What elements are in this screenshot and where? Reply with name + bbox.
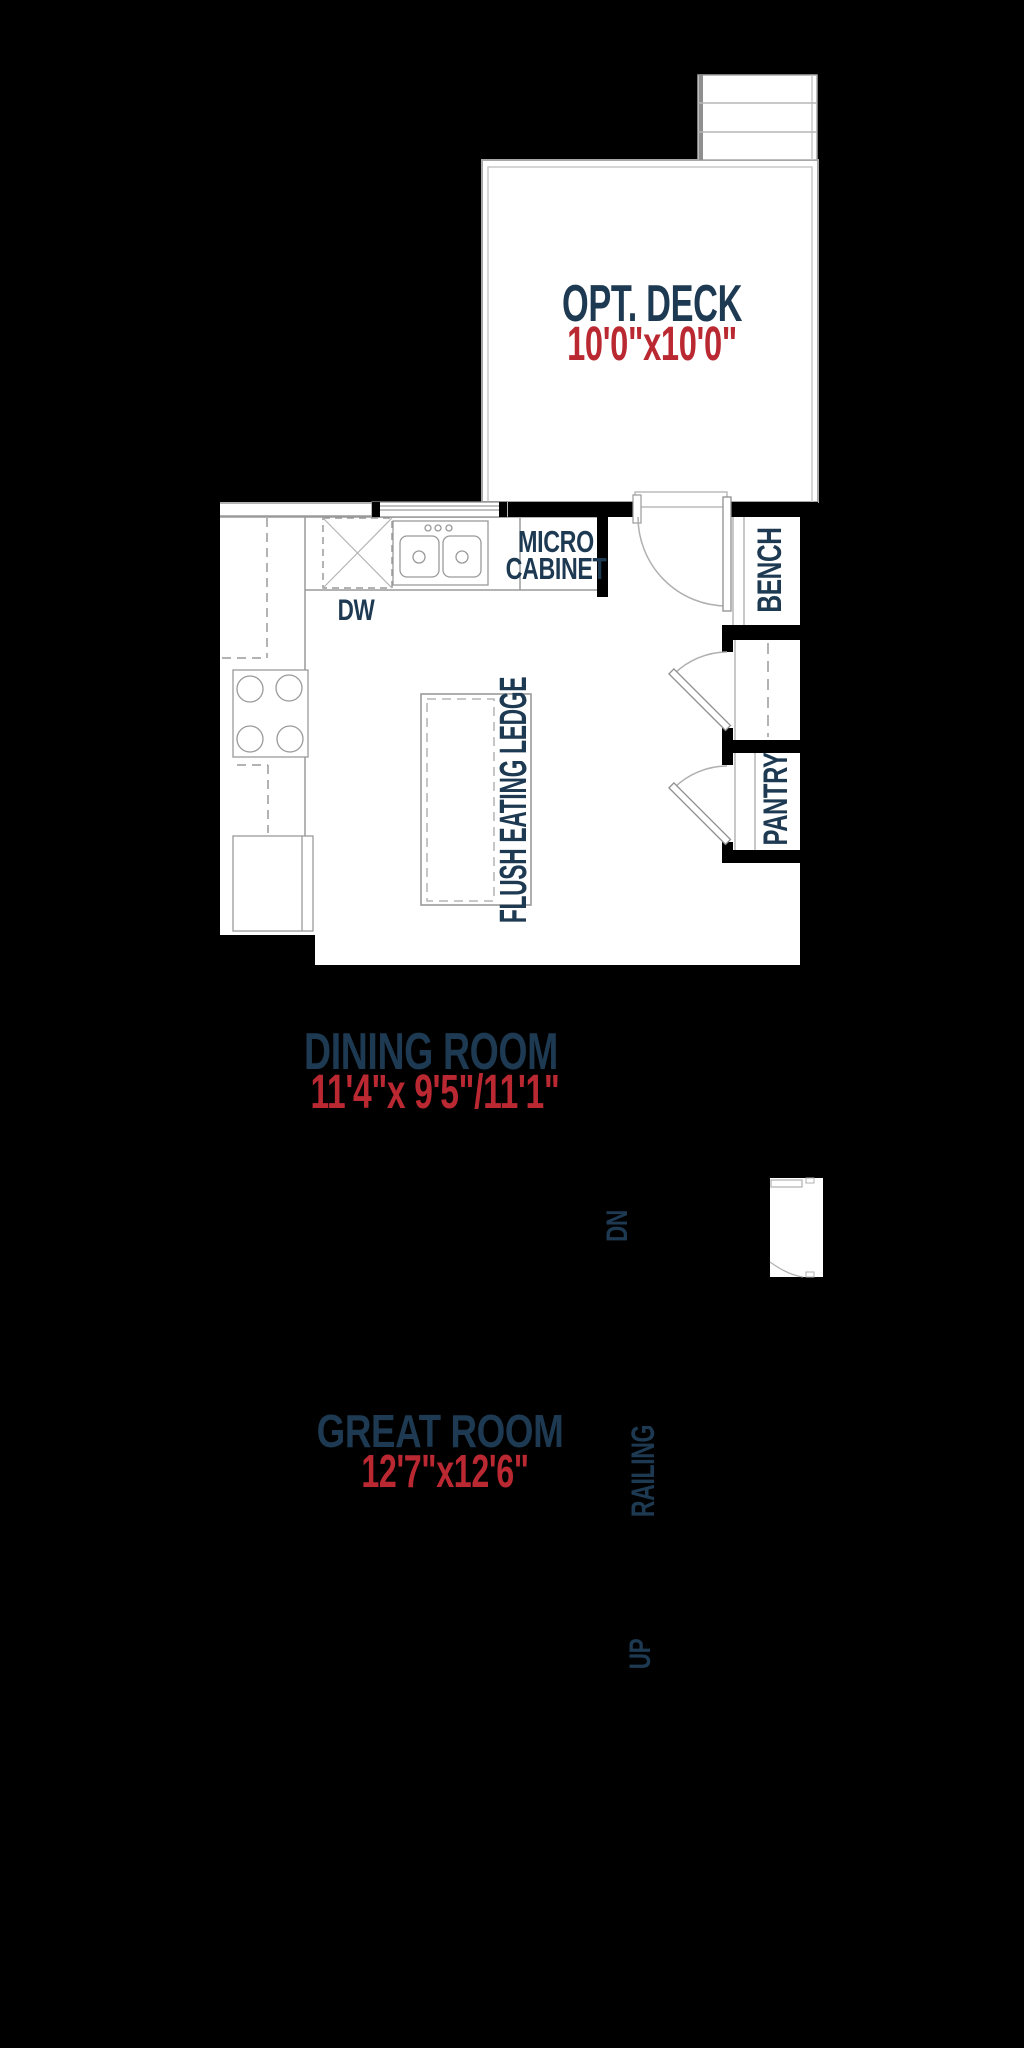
stairs-dn-label: DN xyxy=(603,1210,633,1242)
great-room-dimensions: 12'7"x12'6" xyxy=(361,1448,528,1494)
dishwasher-label: DW xyxy=(338,596,375,626)
kitchen-sink xyxy=(393,521,488,585)
bench-label: BENCH xyxy=(753,527,787,612)
dining-room-dimensions: 11'4"x 9'5"/11'1" xyxy=(311,1069,560,1117)
stairs-up-label: UP xyxy=(626,1639,656,1670)
kitchen-window xyxy=(372,502,507,517)
dishwasher xyxy=(323,518,392,588)
stove xyxy=(233,670,308,757)
micro-cabinet-label: MICRO CABINET xyxy=(506,528,607,582)
deck-dimensions: 10'0"x10'0" xyxy=(567,321,737,369)
stairwell-door xyxy=(770,1178,823,1277)
micro-cabinet-line2: CABINET xyxy=(506,555,607,582)
pantry-label: PANTRY xyxy=(759,752,793,845)
island-label: FLUSH EATING LEDGE xyxy=(495,677,533,923)
refrigerator xyxy=(233,836,313,931)
railing-label: RAILING xyxy=(627,1425,659,1517)
deck-stairs xyxy=(698,75,817,160)
